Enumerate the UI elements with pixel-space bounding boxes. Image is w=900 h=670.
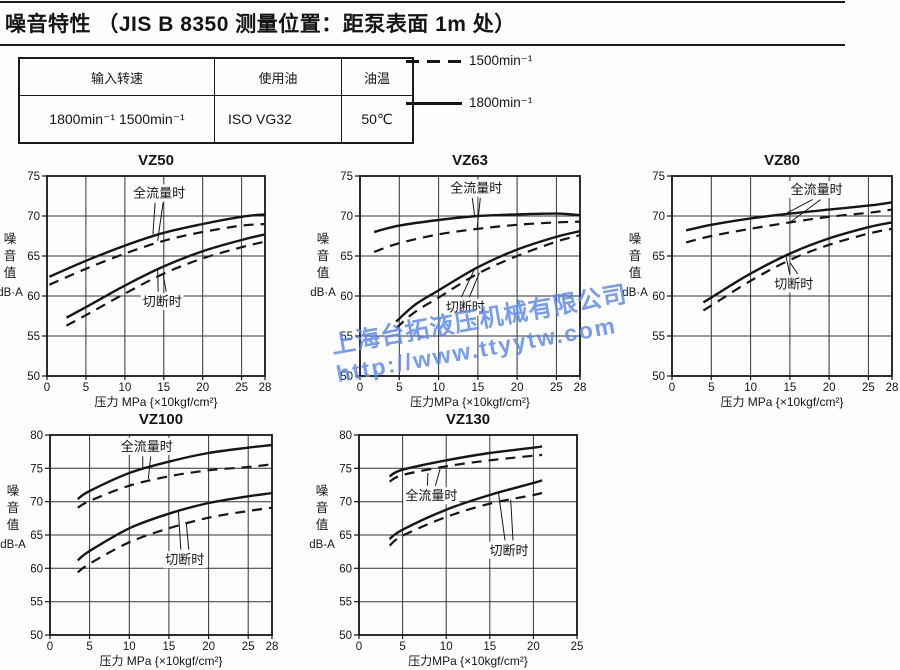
x-tick-label: 10 <box>440 641 453 653</box>
y-tick-label: 65 <box>340 251 353 263</box>
curve-cutoff-1500 <box>66 242 265 326</box>
annotation-label: 切断时 <box>446 300 485 315</box>
x-tick-label: 25 <box>862 382 875 394</box>
x-tick-label: 25 <box>571 641 584 653</box>
curve-full-flow-1800 <box>78 445 272 499</box>
y-tick-label: 75 <box>652 171 665 183</box>
chart-vz80-svg: 051015202528505560657075VZ80压力 MPa {×10k… <box>600 148 900 412</box>
x-tick-label: 10 <box>123 641 136 653</box>
y-tick-label: 50 <box>339 630 352 642</box>
curve-full-flow-1500 <box>78 464 272 507</box>
chart-vz130-svg: 051015202550556065707580VZ130压力MPa {×10k… <box>300 413 600 670</box>
x-tick-label: 0 <box>47 641 53 653</box>
y-axis-label-char: 噪 <box>4 232 17 246</box>
curve-full-flow-1800 <box>49 214 265 276</box>
y-tick-label: 80 <box>30 430 43 442</box>
x-tick-label: 20 <box>823 382 836 394</box>
x-tick-label: 20 <box>527 641 540 653</box>
x-tick-label: 15 <box>157 382 170 394</box>
y-axis-label-char: 值 <box>4 265 17 280</box>
y-tick-label: 60 <box>652 291 665 303</box>
x-tick-label: 15 <box>784 382 797 394</box>
y-axis-label-char: 值 <box>629 265 642 280</box>
x-tick-label: 15 <box>483 641 496 653</box>
x-tick-label: 5 <box>399 641 405 653</box>
x-tick-label: 0 <box>357 382 363 394</box>
x-tick-label: 20 <box>202 641 215 653</box>
annotation-leader-line <box>435 469 440 486</box>
y-tick-label: 75 <box>339 463 352 475</box>
chart-title: VZ130 <box>446 413 490 428</box>
chart-vz80: 051015202528505560657075VZ80压力 MPa {×10k… <box>600 148 900 412</box>
legend-label-1800: 1800min⁻¹ <box>469 95 532 111</box>
y-axis-unit: dB-A <box>0 539 26 551</box>
annotation-label: 切断时 <box>165 552 204 567</box>
y-tick-label: 55 <box>27 331 40 343</box>
y-tick-label: 65 <box>30 530 43 542</box>
y-axis-label-char: 噪 <box>629 232 642 246</box>
col-header-input-speed: 输入转速 <box>19 58 215 96</box>
x-tick-label: 5 <box>86 641 92 653</box>
x-tick-label: 0 <box>669 382 675 394</box>
y-tick-label: 60 <box>30 563 43 575</box>
annotation-leader-line <box>427 473 428 486</box>
y-tick-label: 50 <box>27 371 40 383</box>
x-tick-label: 10 <box>432 382 445 394</box>
y-tick-label: 55 <box>652 331 665 343</box>
y-tick-label: 65 <box>339 530 352 542</box>
x-axis-label: 压力 MPa {×10kgf/cm²} <box>99 654 222 668</box>
chart-vz100-svg: 05101520252850556065707580VZ100压力 MPa {×… <box>0 413 300 670</box>
y-axis-label-char: 值 <box>317 265 330 280</box>
x-tick-label: 25 <box>235 382 248 394</box>
annotation-label: 切断时 <box>489 543 528 558</box>
y-axis-label-char: 噪 <box>7 484 20 498</box>
x-tick-label: 25 <box>242 641 255 653</box>
catalog-page: 噪音特性 （JIS B 8350 测量位置：距泵表面 1m 处） 输入转速 使用… <box>0 0 900 670</box>
y-tick-label: 50 <box>340 371 353 383</box>
legend-label-1500: 1500min⁻¹ <box>469 53 532 69</box>
y-axis-label-char: 音 <box>629 248 642 263</box>
x-tick-label: 10 <box>119 382 132 394</box>
x-tick-label: 28 <box>886 382 899 394</box>
x-axis-label: 压力MPa {×10kgf/cm²} <box>408 654 528 668</box>
y-tick-label: 60 <box>27 291 40 303</box>
y-tick-label: 60 <box>340 291 353 303</box>
legend: 1500min⁻¹ 1800min⁻¹ <box>406 52 532 136</box>
y-tick-label: 75 <box>27 171 40 183</box>
x-tick-label: 20 <box>511 382 524 394</box>
col-header-oil-used: 使用油 <box>215 58 342 96</box>
x-tick-label: 5 <box>396 382 402 394</box>
x-tick-label: 28 <box>259 382 272 394</box>
annotation-leader-line <box>472 198 474 216</box>
x-tick-label: 5 <box>708 382 714 394</box>
annotation-label: 全流量时 <box>133 185 185 200</box>
y-tick-label: 70 <box>30 497 43 509</box>
annotation-label: 全流量时 <box>405 488 457 503</box>
y-tick-label: 70 <box>27 211 40 223</box>
annotation-label: 全流量时 <box>791 182 843 197</box>
cell-oil-used: ISO VG32 <box>215 96 342 144</box>
x-tick-label: 5 <box>83 382 89 394</box>
chart-vz100: 05101520252850556065707580VZ100压力 MPa {×… <box>0 413 300 670</box>
y-tick-label: 65 <box>27 251 40 263</box>
conditions-header-row: 输入转速 使用油 油温 <box>19 58 413 96</box>
y-tick-label: 55 <box>340 331 353 343</box>
annotation-label: 切断时 <box>774 277 813 292</box>
y-axis-unit: dB·A <box>0 287 23 299</box>
y-axis-label-char: 音 <box>316 500 329 515</box>
conditions-value-row: 1800min⁻¹ 1500min⁻¹ ISO VG32 50℃ <box>19 96 413 144</box>
y-axis-unit: dB-A <box>309 539 335 551</box>
x-tick-label: 0 <box>44 382 50 394</box>
x-tick-label: 15 <box>163 641 176 653</box>
cell-input-speed: 1800min⁻¹ 1500min⁻¹ <box>19 96 215 144</box>
annotation-leader-line <box>158 203 164 241</box>
y-tick-label: 70 <box>339 497 352 509</box>
title-bar: 噪音特性 （JIS B 8350 测量位置：距泵表面 1m 处） <box>0 1 845 46</box>
y-axis-label-char: 噪 <box>317 232 330 246</box>
annotation-leader-line <box>786 256 790 274</box>
dashed-line-sample <box>406 60 462 63</box>
legend-item-1500: 1500min⁻¹ <box>406 52 532 70</box>
annotation-leader-line <box>153 203 155 235</box>
y-axis-label-char: 音 <box>7 500 20 515</box>
x-tick-label: 15 <box>472 382 485 394</box>
x-tick-label: 28 <box>574 382 587 394</box>
legend-item-1800: 1800min⁻¹ <box>406 94 532 112</box>
chart-vz50-svg: 051015202528505560657075VZ50压力 MPa {×10k… <box>0 148 300 412</box>
y-tick-label: 75 <box>340 171 353 183</box>
chart-title: VZ50 <box>138 152 174 169</box>
y-tick-label: 60 <box>339 563 352 575</box>
conditions-table: 输入转速 使用油 油温 1800min⁻¹ 1500min⁻¹ ISO VG32… <box>18 57 414 144</box>
annotation-leader-line <box>186 524 188 549</box>
curve-cutoff-1800 <box>396 231 580 321</box>
annotation-leader-line <box>790 262 798 274</box>
annotation-leader-line <box>511 500 513 541</box>
annotation-label: 全流量时 <box>450 181 502 196</box>
x-axis-label: 压力MPa {×10kgf/cm²} <box>410 395 530 409</box>
y-axis-label-char: 值 <box>7 517 20 532</box>
x-tick-label: 28 <box>266 641 279 653</box>
x-axis-label: 压力 MPa {×10kgf/cm²} <box>720 395 843 409</box>
y-axis-label-char: 噪 <box>316 484 329 498</box>
chart-vz63: 051015202528505560657075VZ63压力MPa {×10kg… <box>300 148 600 412</box>
x-tick-label: 0 <box>356 641 362 653</box>
chart-title: VZ100 <box>139 413 183 428</box>
plot-border <box>47 176 265 376</box>
annotation-leader-line <box>158 269 159 292</box>
y-axis-label-char: 音 <box>4 248 17 263</box>
y-axis-label-char: 音 <box>317 248 330 263</box>
chart-title: VZ80 <box>764 152 800 169</box>
annotation-leader-line <box>178 512 180 550</box>
plot-border <box>360 176 580 376</box>
solid-line-sample <box>406 102 462 105</box>
y-tick-label: 50 <box>652 371 665 383</box>
y-tick-label: 75 <box>30 463 43 475</box>
annotation-label: 切断时 <box>143 294 182 309</box>
chart-vz50: 051015202528505560657075VZ50压力 MPa {×10k… <box>0 148 300 412</box>
x-tick-label: 25 <box>550 382 563 394</box>
curve-cutoff-1500 <box>703 229 892 311</box>
y-axis-unit: dB·A <box>310 287 336 299</box>
col-header-oil-temp: 油温 <box>342 58 414 96</box>
chart-title: VZ63 <box>452 152 488 169</box>
y-tick-label: 80 <box>339 430 352 442</box>
page-title: 噪音特性 （JIS B 8350 测量位置：距泵表面 1m 处） <box>5 8 845 38</box>
y-tick-label: 70 <box>652 211 665 223</box>
y-tick-label: 65 <box>652 251 665 263</box>
x-axis-label: 压力 MPa {×10kgf/cm²} <box>94 395 217 409</box>
curve-cutoff-1500 <box>396 235 580 328</box>
y-axis-label-char: 值 <box>316 517 329 532</box>
y-tick-label: 55 <box>339 597 352 609</box>
chart-vz63-svg: 051015202528505560657075VZ63压力MPa {×10kg… <box>300 148 600 412</box>
y-tick-label: 55 <box>30 597 43 609</box>
y-tick-label: 70 <box>340 211 353 223</box>
cell-oil-temp: 50℃ <box>342 96 414 144</box>
y-tick-label: 50 <box>30 630 43 642</box>
x-tick-label: 10 <box>744 382 757 394</box>
annotation-label: 全流量时 <box>121 439 173 454</box>
y-axis-unit: dB·A <box>622 287 648 299</box>
x-tick-label: 20 <box>196 382 209 394</box>
chart-vz130: 051015202550556065707580VZ130压力MPa {×10k… <box>300 413 600 670</box>
